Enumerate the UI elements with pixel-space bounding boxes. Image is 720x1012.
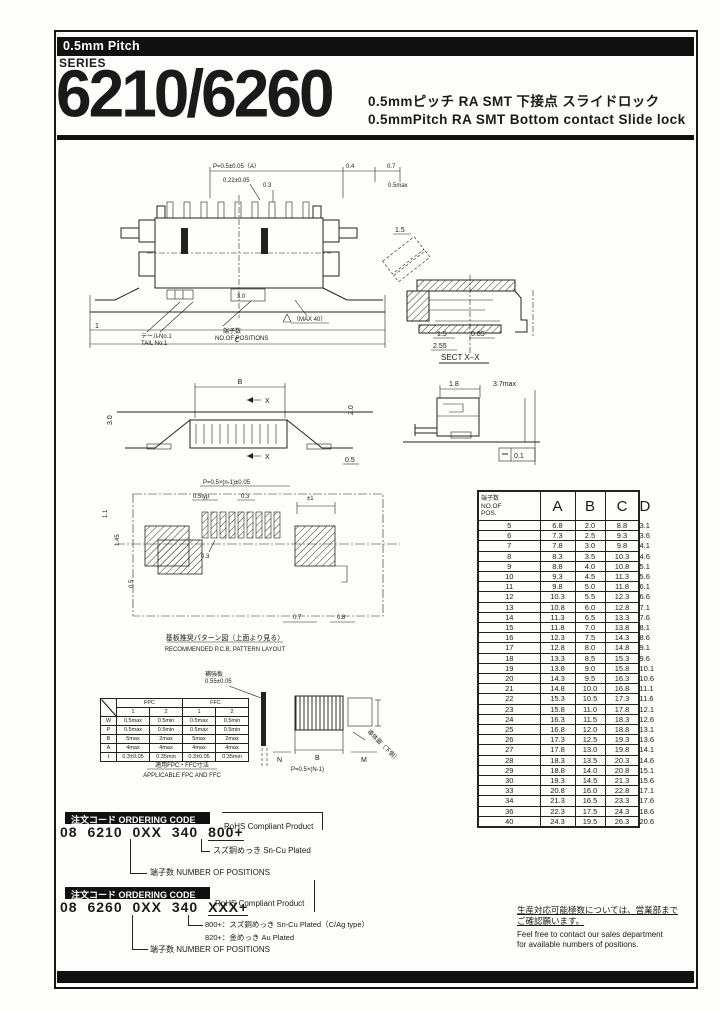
fpc-value-cell: 4max (183, 744, 216, 753)
fpc-table-row: P0.5max0.5min0.5max0.5min (101, 726, 249, 735)
footnote-jp-1: 生産対応可能極数については、営業部まで (517, 905, 695, 916)
dim-value-cell: 11.8 (540, 623, 575, 633)
dim-table-body: 56.82.08.83.167.32.59.33.677.83.09.84.18… (478, 521, 639, 828)
positions-cell: 10 (478, 572, 540, 582)
fpc-value-cell: 4max (150, 744, 183, 753)
positions-cell: 29 (478, 765, 540, 775)
dim-value-cell: 8.8 (540, 561, 575, 571)
dim-table-row: 3019.314.521.315.6 (478, 776, 639, 786)
col-header-b: B (575, 491, 605, 521)
dim-value-cell: 20.8 (540, 786, 575, 796)
dim-value-cell: 22.8 (605, 786, 639, 796)
dim-table-row: 2114.810.016.811.1 (478, 684, 639, 694)
dim-value-cell: 12.5 (575, 735, 605, 745)
positions-cell: 6 (478, 531, 540, 541)
dim-value-cell: 16.0 (575, 786, 605, 796)
dim-value-cell: 17.3 (605, 694, 639, 704)
dim-table-row: 1712.88.014.89.1 (478, 643, 639, 653)
positions-header-en1: NO.OF (479, 503, 540, 510)
pcb-dim-0-3-top: 0.3 (241, 494, 250, 500)
positions-cell: 7 (478, 541, 540, 551)
dim-value-cell: 9.3 (540, 572, 575, 582)
positions-cell: 24 (478, 714, 540, 724)
ordering-code-1-title: 注文コード ORDERING CODE (65, 812, 210, 824)
dim-value-cell: 18.8 (605, 725, 639, 735)
callout-line-positions-1 (130, 839, 147, 874)
fpc-row-label: W (101, 717, 117, 726)
positions-cell: 13 (478, 602, 540, 612)
dim-value-cell: 3.0 (575, 541, 605, 551)
dim-value-cell: 11.5 (575, 714, 605, 724)
positions-cell: 26 (478, 735, 540, 745)
dim-value-cell: 17.8 (540, 745, 575, 755)
dim-value-cell: 22.3 (540, 806, 575, 816)
pcb-pattern-drawing: P=0.5×(n-1)±0.05 0.5typ 0.3 ±1 (103, 480, 400, 653)
dim-value-cell: 24.3 (605, 806, 639, 816)
dim-table-row: 2014.39.516.310.6 (478, 674, 639, 684)
col-header-a: A (540, 491, 575, 521)
dim-value-cell: 8.3 (540, 551, 575, 561)
flatness-0-1: 0.1 (514, 453, 524, 460)
positions-header: 端子数 NO.OF POS. (478, 491, 540, 521)
positions-cell: 18 (478, 653, 540, 663)
positions-cell: 16 (478, 633, 540, 643)
dimensions-table: 端子数 NO.OF POS. A B C D 56.82.08.83.167.3… (477, 490, 640, 828)
fpc-dim-n: N (277, 757, 282, 764)
dim-value-cell: 4.5 (575, 572, 605, 582)
dim-b: B (238, 379, 243, 386)
dim-table-row: 2516.812.018.813.1 (478, 725, 639, 735)
dim-1-5: 1.5 (437, 331, 447, 338)
fpc-dim-m: M (361, 757, 367, 764)
dim-table-row: 1210.35.512.36.6 (478, 592, 639, 602)
dim-value-cell: 5.5 (575, 592, 605, 602)
dim-value-cell: 11.0 (575, 704, 605, 714)
dim-value-cell: 14.8 (540, 684, 575, 694)
dim-value-cell: 8.8 (605, 521, 639, 531)
pcb-dim-pitch: P=0.5×(n-1)±0.05 (203, 480, 251, 486)
positions-cell: 40 (478, 816, 540, 827)
fpc-row-label: P (101, 726, 117, 735)
dim-value-cell: 13.0 (575, 745, 605, 755)
dim-table-row: 2617.312.519.313.6 (478, 735, 639, 745)
dim-3-0: 3.0 (237, 294, 246, 300)
dim-value-cell: 23.3 (605, 796, 639, 806)
pcb-dim-0-5typ: 0.5typ (193, 494, 210, 500)
dim-value-cell: 2.0 (575, 521, 605, 531)
rohs-label-2: RoHS Compliant Product (215, 899, 304, 908)
dim-0-22: 0.22±0.05 (223, 178, 250, 184)
ffc-group-header: FFC (183, 699, 249, 708)
fpc-value-cell: 4max (216, 744, 249, 753)
dim-value-cell: 8.5 (575, 653, 605, 663)
dim-value-cell: 10.8 (605, 561, 639, 571)
dim-value-cell: 6.8 (540, 521, 575, 531)
positions-cell: 22 (478, 694, 540, 704)
positions-cell: 36 (478, 806, 540, 816)
dim-value-cell: 5.0 (575, 582, 605, 592)
footnote-jp-2: ご確認願います。 (517, 916, 695, 927)
callout-line-positions-2 (132, 915, 148, 950)
positions-cell: 30 (478, 776, 540, 786)
fpc-value-cell: 0.5max (117, 726, 150, 735)
dim-table-row: 2315.811.017.812.1 (478, 704, 639, 714)
dim-value-cell: 12.0 (575, 725, 605, 735)
plating-callout-800: 800+：スズ銅めっき Sn-Cu Plated（C/Ag type） (205, 919, 369, 930)
dim-table-row: 3622.317.524.318.6 (478, 806, 639, 816)
dim-value-cell: 6.0 (575, 602, 605, 612)
positions-cell: 33 (478, 786, 540, 796)
dim-table-row: 1612.37.514.38.6 (478, 633, 639, 643)
dim-value-cell: 2.5 (575, 531, 605, 541)
positions-cell: 25 (478, 725, 540, 735)
dim-value-cell: 10.0 (575, 684, 605, 694)
positions-cell: 9 (478, 561, 540, 571)
dim-value-cell: 17.8 (605, 704, 639, 714)
dim-0-5max: 0.5max (388, 183, 408, 189)
positions-cell: 5 (478, 521, 540, 531)
pcb-dim-0-5: 0.5 (129, 579, 135, 588)
fpc-value-cell: 0.5max (183, 717, 216, 726)
dim-table-row: 2818.313.520.314.6 (478, 755, 639, 765)
rohs-bracket-right-1 (322, 812, 323, 830)
positions-cell: 11 (478, 582, 540, 592)
positions-header-jp: 端子数 (479, 496, 540, 503)
tail-label-en: TAIL No.1 (141, 341, 168, 347)
fpc-table-row: t0.3±0.050.35min0.3±0.050.35min (101, 753, 249, 762)
front-view-drawing: B X X 3.0 2.0 0.5 (107, 379, 373, 464)
pcb-dim-1-45: 1.45 (115, 534, 121, 546)
fpc-ffc-table: FPC FFC 1 2 1 2 W0.5max0.5min0.5max0.5mi… (100, 698, 249, 762)
fpc-table-body: W0.5max0.5min0.5max0.5minP0.5max0.5min0.… (101, 717, 249, 762)
positions-header-en2: POS. (479, 510, 540, 517)
dim-value-cell: 26.3 (605, 816, 639, 827)
dim-table-row: 67.32.59.33.6 (478, 531, 639, 541)
dim-value-cell: 7.0 (575, 623, 605, 633)
dim-table-row: 119.85.011.86.1 (478, 582, 639, 592)
dim-value-cell: 9.3 (605, 531, 639, 541)
dim-table-row: 98.84.010.85.1 (478, 561, 639, 571)
fpc-value-cell: 0.35min (150, 753, 183, 762)
dim-0-3: 0.3 (263, 183, 272, 189)
dim-value-cell: 21.3 (540, 796, 575, 806)
pcb-dim-0-7: 0.7 (293, 615, 302, 621)
dim-value-cell: 10.3 (605, 551, 639, 561)
fpc-table-corner (101, 699, 117, 717)
positions-cell: 8 (478, 551, 540, 561)
section-x-top: X (265, 398, 270, 405)
dim-value-cell: 11.8 (605, 582, 639, 592)
callout-line-plating-2 (188, 915, 203, 926)
dim-value-cell: 14.8 (605, 643, 639, 653)
stiffener-label-jp: 補強板 (205, 670, 223, 678)
dim-0-7: 0.7 (387, 164, 396, 170)
pcb-dim-0-3: 0.3 (201, 554, 210, 560)
positions-cell: 19 (478, 663, 540, 673)
fpc-value-cell: 0.5max (183, 726, 216, 735)
dim-value-cell: 9.5 (575, 674, 605, 684)
dim-value-cell: 16.3 (605, 674, 639, 684)
dim-table-row: 77.83.09.84.1 (478, 541, 639, 551)
top-view-drawing: P=0.5±0.05（A） 0.4 0.7 0.22±0.05 0.3 0.5m… (90, 163, 408, 348)
dim-value-cell: 10.8 (540, 602, 575, 612)
positions-callout-2: 端子数 NUMBER OF POSITIONS (150, 944, 270, 955)
dim-table-row: 2416.311.518.312.6 (478, 714, 639, 724)
dim-value-cell: 7.3 (540, 531, 575, 541)
fpc-value-cell: 0.5max (117, 717, 150, 726)
dim-value-cell: 12.3 (605, 592, 639, 602)
dim-0-85: 0.85 (471, 331, 485, 338)
fpc-dim-b: B (315, 755, 320, 762)
dim-table-row: 4024.319.526.320.6 (478, 816, 639, 827)
dim-value-cell: 9.8 (605, 541, 639, 551)
dim-value-cell: 14.3 (605, 633, 639, 643)
dim-value-cell: 13.8 (540, 663, 575, 673)
ordering-code-1-main: 08 6210 0XX 340 (60, 824, 198, 840)
fpc-value-cell: 0.5min (216, 717, 249, 726)
dim-value-cell: 11.3 (605, 572, 639, 582)
dim-value-cell: 17.5 (575, 806, 605, 816)
dim-value-cell: 12.3 (540, 633, 575, 643)
dim-value-cell: 9.0 (575, 663, 605, 673)
dim-value-cell: 16.5 (575, 796, 605, 806)
dim-value-cell: 16.8 (540, 725, 575, 735)
dim-value-cell: 19.5 (575, 816, 605, 827)
dim-value-cell: 21.3 (605, 776, 639, 786)
pcb-caption-en: RECOMMENDED P.C.B. PATTERN LAYOUT (165, 647, 286, 653)
positions-cell: 21 (478, 684, 540, 694)
dim-table-row: 1310.86.012.87.1 (478, 602, 639, 612)
dim-value-cell: 13.3 (540, 653, 575, 663)
dim-value-cell: 14.5 (575, 776, 605, 786)
dim-3-7max: 3.7max (493, 381, 516, 388)
rohs-bracket-right-2 (314, 880, 315, 912)
positions-cell: 23 (478, 704, 540, 714)
dim-value-cell: 13.8 (605, 623, 639, 633)
dim-value-cell: 13.3 (605, 612, 639, 622)
section-x-bottom: X (265, 454, 270, 461)
dim-value-cell: 14.0 (575, 765, 605, 775)
ordering-code-2-main: 08 6260 0XX 340 (60, 899, 198, 915)
positions-cell: 15 (478, 623, 540, 633)
dim-value-cell: 19.3 (540, 776, 575, 786)
dim-value-cell: 15.8 (605, 663, 639, 673)
dim-table-row: 2918.814.020.815.1 (478, 765, 639, 775)
fpc-caption-jp: 適用FPC・FFC寸法 (155, 761, 209, 769)
dim-value-cell: 17.3 (540, 735, 575, 745)
fpc-value-cell: 0.35min (216, 753, 249, 762)
dim-value-cell: 20.8 (605, 765, 639, 775)
footnote-en-2: for available numbers of positions. (517, 940, 695, 950)
fpc-table-row: A4max4max4max4max (101, 744, 249, 753)
bottom-bar (57, 971, 694, 983)
fpc-value-cell: 0.5min (150, 726, 183, 735)
ordering-code-2-title: 注文コード ORDERING CODE (65, 887, 210, 899)
positions-cell: 27 (478, 745, 540, 755)
fpc-row-label: t (101, 753, 117, 762)
dim-0-5: 0.5 (345, 457, 355, 464)
positions-cell: 17 (478, 643, 540, 653)
dim-value-cell: 15.3 (605, 653, 639, 663)
dim-table-row: 109.34.511.35.6 (478, 572, 639, 582)
max-positions-label: （MAX 40） (293, 316, 326, 323)
positions-cell: 28 (478, 755, 540, 765)
fpc-value-cell: 4max (117, 744, 150, 753)
fpc-sub-1: 1 (117, 708, 150, 717)
fpc-row-label: B (101, 735, 117, 744)
plating-callout-1: スズ銅めっき Sn-Cu Plated (213, 845, 311, 856)
fpc-value-cell: 5max (183, 735, 216, 744)
fpc-value-cell: 2max (150, 735, 183, 744)
pcb-caption-jp: 基板推奨パターン図（上面より見る） (166, 633, 285, 642)
dim-table-row: 1813.38.515.39.6 (478, 653, 639, 663)
pcb-dim-pm1: ±1 (307, 496, 314, 502)
stiffener-dim: 0.55±0.05 (205, 679, 232, 685)
ordering-code-1: 08 6210 0XX 340 800+ (60, 824, 244, 840)
dim-value-cell: 16.8 (605, 684, 639, 694)
fpc-value-cell: 0.3±0.05 (117, 753, 150, 762)
positions-label-en: NO.OF POSITIONS (215, 336, 268, 342)
dim-1: 1 (95, 323, 99, 330)
positions-label-jp: 端子数 (223, 327, 241, 335)
fpc-table-row: B5max2max5max2max (101, 735, 249, 744)
fpc-dim-pitch: P=0.5×(N-1) (291, 767, 324, 773)
dim-value-cell: 15.8 (540, 704, 575, 714)
dim-value-cell: 18.8 (540, 765, 575, 775)
dim-value-cell: 8.0 (575, 643, 605, 653)
side-view-drawing: 1.8 3.7max 0.1 (403, 381, 540, 465)
fpc-table-row: W0.5max0.5min0.5max0.5min (101, 717, 249, 726)
dim-table-row: 3421.316.523.317.6 (478, 796, 639, 806)
dim-table-row: 1511.87.013.88.1 (478, 623, 639, 633)
fpc-value-cell: 0.5min (150, 717, 183, 726)
dim-table-row: 1913.89.015.810.1 (478, 663, 639, 673)
footnote-en-1: Feel free to contact our sales departmen… (517, 930, 695, 940)
dim-value-cell: 9.8 (540, 582, 575, 592)
footnote: 生産対応可能極数については、営業部まで ご確認願います。 Feel free t… (517, 905, 695, 950)
fpc-caption-en: APPLICABLE FPC AND FFC (143, 773, 221, 779)
tail-label-jp: テールNo.1 (141, 333, 172, 340)
col-header-c: C (605, 491, 639, 521)
positions-callout-1: 端子数 NUMBER OF POSITIONS (150, 867, 270, 878)
dim-value-cell: 18.3 (605, 714, 639, 724)
dim-value-cell: 20.3 (605, 755, 639, 765)
dim-value-cell: 12.8 (605, 602, 639, 612)
dim-value-cell: 7.8 (540, 541, 575, 551)
fpc-sub-2: 2 (150, 708, 183, 717)
dim-value-cell: 7.5 (575, 633, 605, 643)
plating-callout-820: 820+：金めっき Au Plated (205, 932, 294, 943)
dim-table-row: 2215.310.517.311.6 (478, 694, 639, 704)
conductor-side-label: 導体面（下側） (366, 728, 401, 763)
positions-cell: 12 (478, 592, 540, 602)
positions-cell: 34 (478, 796, 540, 806)
dim-value-cell: 11.3 (540, 612, 575, 622)
dim-1-8: 1.8 (449, 381, 459, 388)
rohs-bracket-top-1 (222, 812, 322, 813)
dim-table-row: 1411.36.513.37.6 (478, 612, 639, 622)
dim-value-cell: 13.5 (575, 755, 605, 765)
pcb-dim-1-1: 1.1 (103, 509, 109, 518)
dim-value-cell: 15.3 (540, 694, 575, 704)
dim-2-0: 2.0 (348, 405, 355, 415)
dim-value-cell: 3.5 (575, 551, 605, 561)
subtitle-japanese: 0.5mmピッチ RA SMT 下接点 スライドロック (368, 90, 660, 110)
dim-2-55: 2.55 (433, 343, 447, 350)
dim-value-cell: 19.8 (605, 745, 639, 755)
ffc-sub-1: 1 (183, 708, 216, 717)
fpc-group-header: FPC (117, 699, 183, 708)
dim-value-cell: 14.3 (540, 674, 575, 684)
pitch-badge: 0.5mm Pitch (57, 37, 694, 56)
dim-pitch: P=0.5±0.05（A） (213, 163, 260, 170)
dim-value-cell: 24.3 (540, 816, 575, 827)
datasheet-page: 0.5mm Pitch SERIES 6210/6260 0.5mmピッチ RA… (0, 0, 720, 1012)
subtitle-english: 0.5mmPitch RA SMT Bottom contact Slide l… (368, 112, 686, 127)
positions-cell: 14 (478, 612, 540, 622)
dim-0-4: 0.4 (346, 164, 355, 170)
fpc-value-cell: 2max (216, 735, 249, 744)
fpc-row-label: A (101, 744, 117, 753)
dim-value-cell: 18.3 (540, 755, 575, 765)
dim-value-cell: 16.3 (540, 714, 575, 724)
dim-table-row: 2717.813.019.814.1 (478, 745, 639, 755)
dim-value-cell: 12.8 (540, 643, 575, 653)
pcb-dim-0-8: 0.8 (337, 615, 346, 621)
rohs-label-1: RoHS Compliant Product (224, 822, 313, 831)
dim-value-cell: 10.5 (575, 694, 605, 704)
dim-value-cell: 19.3 (605, 735, 639, 745)
dim-value-cell: 4.0 (575, 561, 605, 571)
section-caption: SECT X–X (441, 353, 480, 362)
fpc-value-cell: 5max (117, 735, 150, 744)
dim-3-0-front: 3.0 (107, 415, 114, 425)
dim-table-row: 56.82.08.83.1 (478, 521, 639, 531)
fpc-value-cell: 0.3±0.05 (183, 753, 216, 762)
positions-cell: 20 (478, 674, 540, 684)
dim-value-cell: 10.3 (540, 592, 575, 602)
dim-1-5-top: 1.5 (395, 227, 405, 234)
callout-line-plating (201, 839, 210, 852)
dim-value-cell: 6.5 (575, 612, 605, 622)
ffc-sub-2: 2 (216, 708, 249, 717)
fpc-value-cell: 0.5min (216, 726, 249, 735)
dim-table-row: 88.33.510.34.6 (478, 551, 639, 561)
section-view-drawing: 1.5 1.5 2.55 0.85 SECT X–X (383, 227, 533, 363)
series-number: 6210/6260 (56, 60, 332, 129)
dim-table-row: 3320.816.022.817.1 (478, 786, 639, 796)
